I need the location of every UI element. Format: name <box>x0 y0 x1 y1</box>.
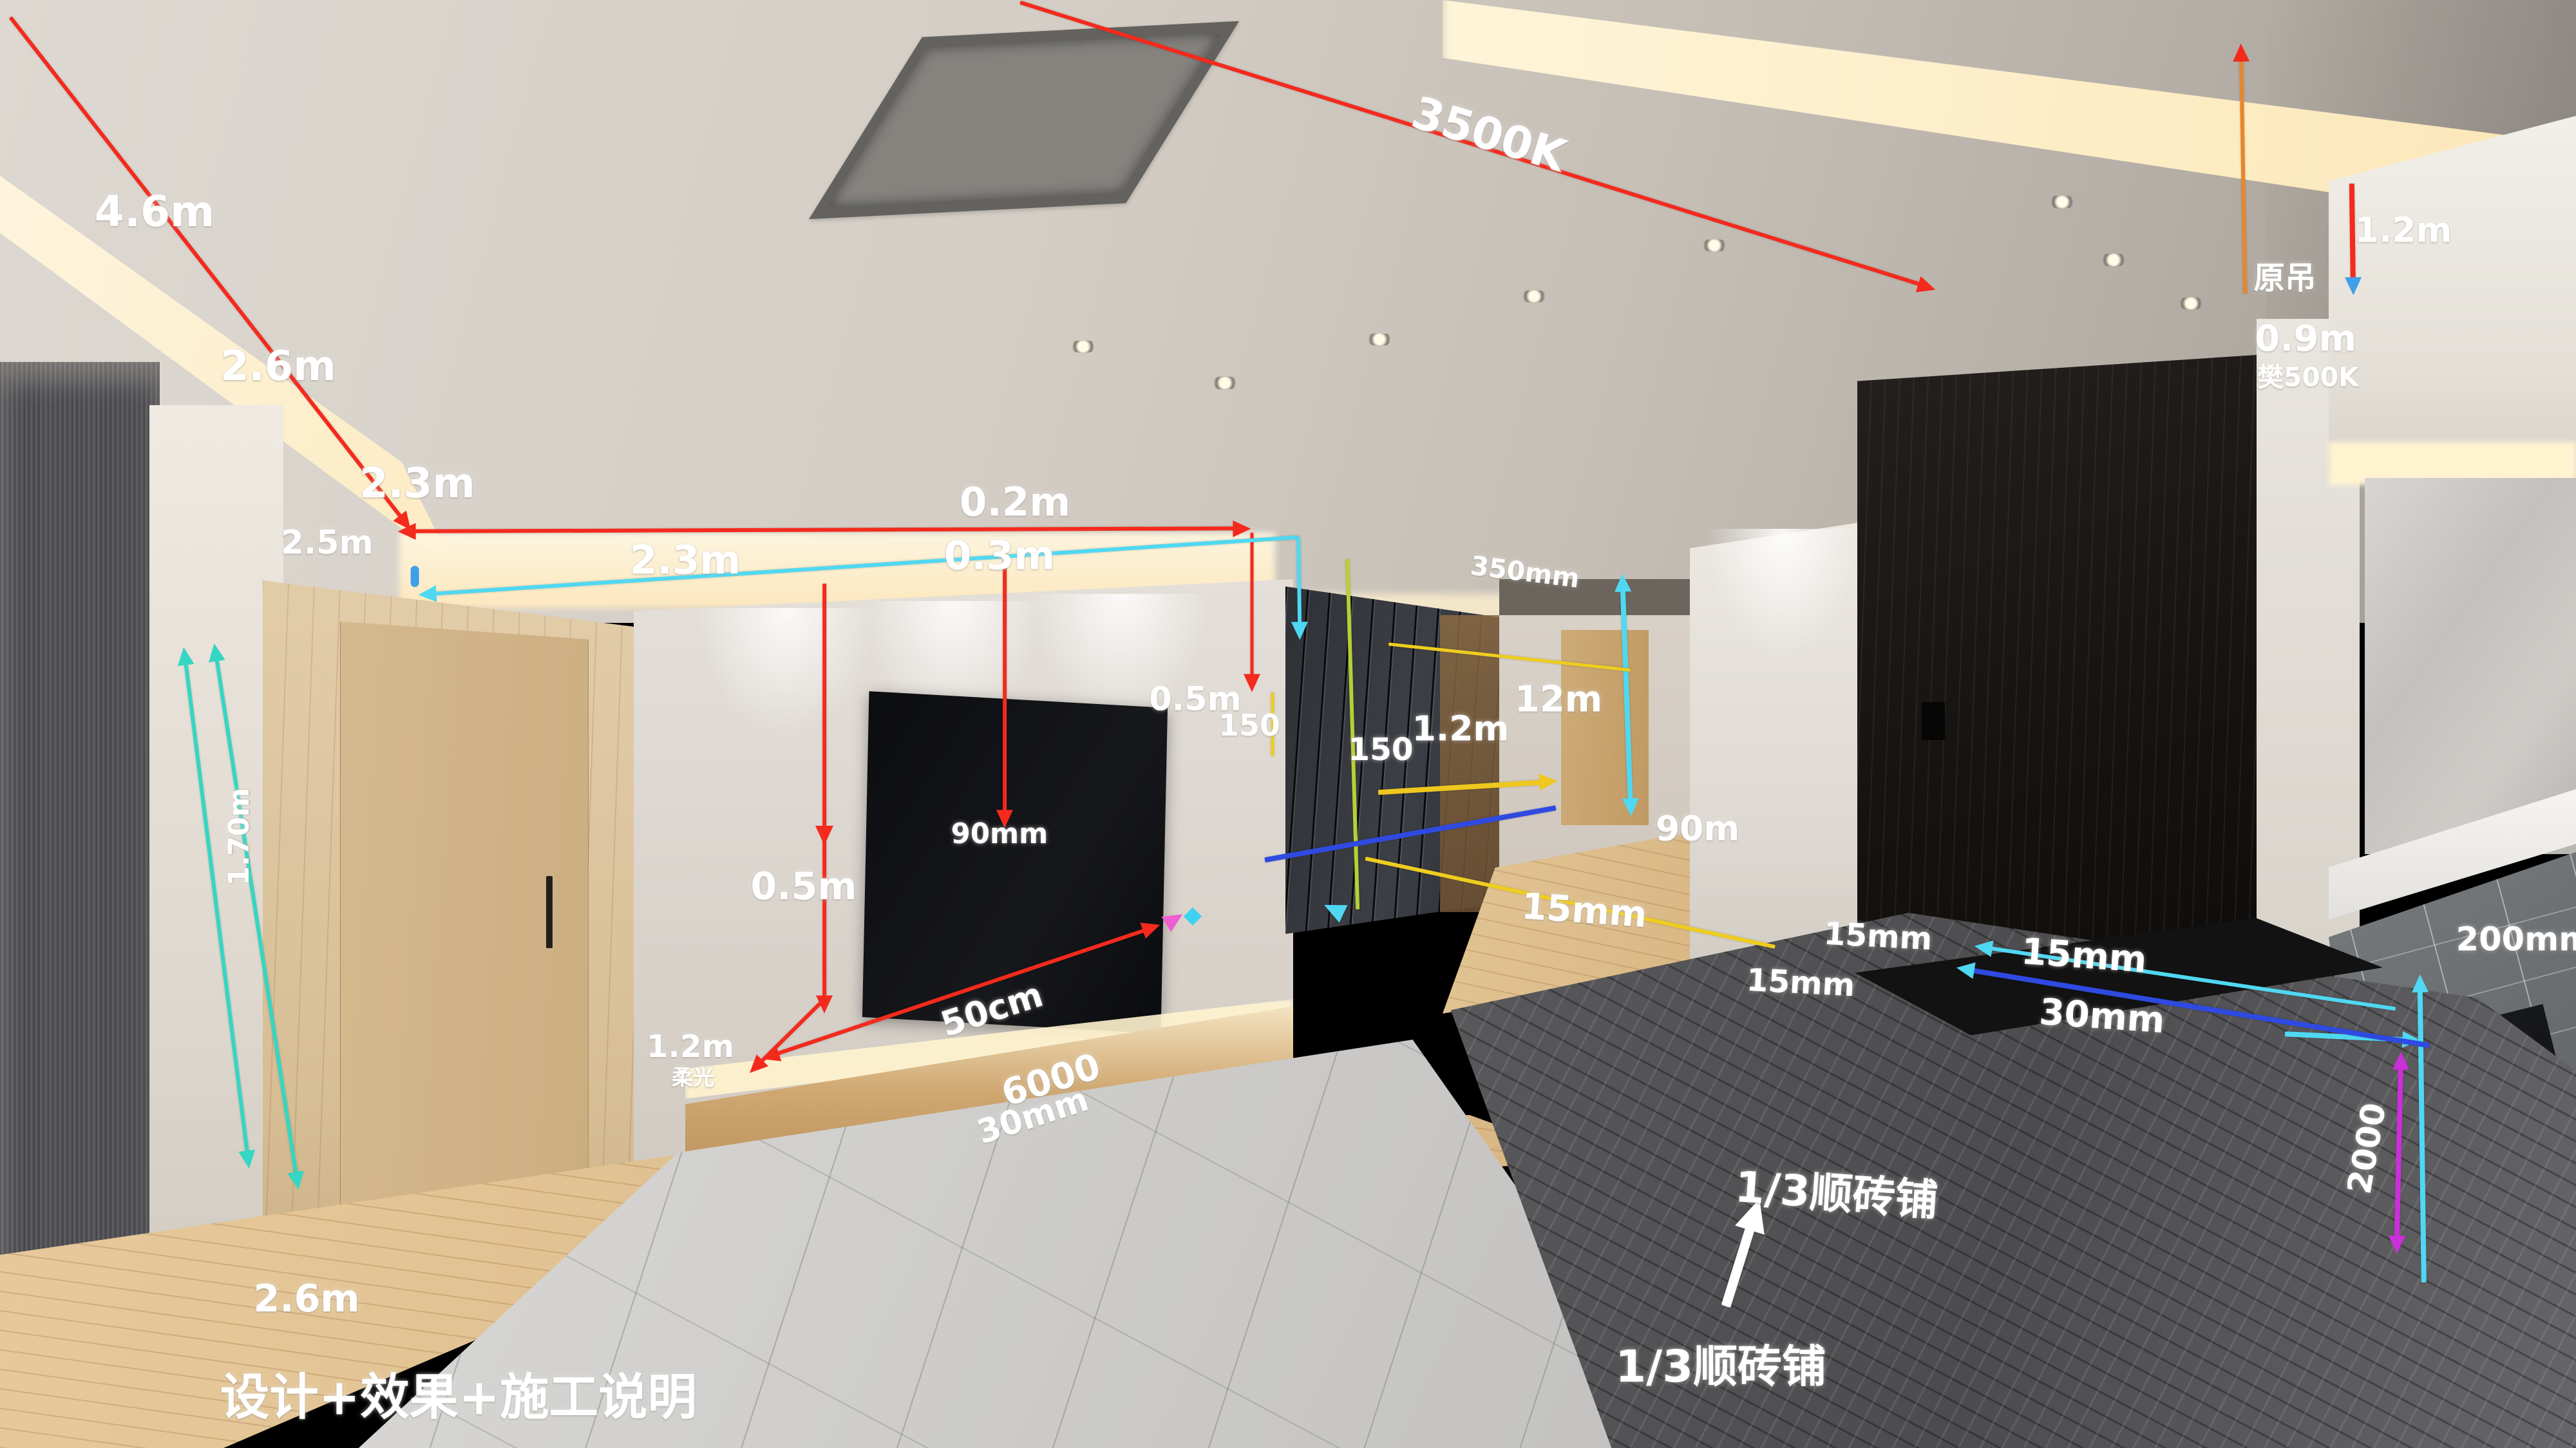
kitchen-backsplash <box>2365 478 2576 854</box>
television <box>862 691 1168 1034</box>
annotated-interior-render: 4.6m2.6m2.3m2.5m0.2m0.3m3500K2.3m1.70m2.… <box>0 0 2576 1448</box>
downlight-icon <box>1211 376 1239 389</box>
downlight-icon <box>1700 239 1728 252</box>
door-lock <box>1922 702 1945 739</box>
middle-wall-glow <box>1705 529 1860 659</box>
downlight-icon <box>2048 195 2076 208</box>
door-handle <box>546 876 553 948</box>
downlight-icon <box>1520 290 1548 303</box>
downlight-icon <box>2099 253 2128 266</box>
hallway-ceiling-shadow <box>1499 579 1705 615</box>
cabinet-lit-shelves <box>1440 615 1502 912</box>
downlight-icon <box>2177 297 2205 310</box>
wall-washer-glow <box>696 608 876 738</box>
hallway-door <box>1561 630 1649 825</box>
